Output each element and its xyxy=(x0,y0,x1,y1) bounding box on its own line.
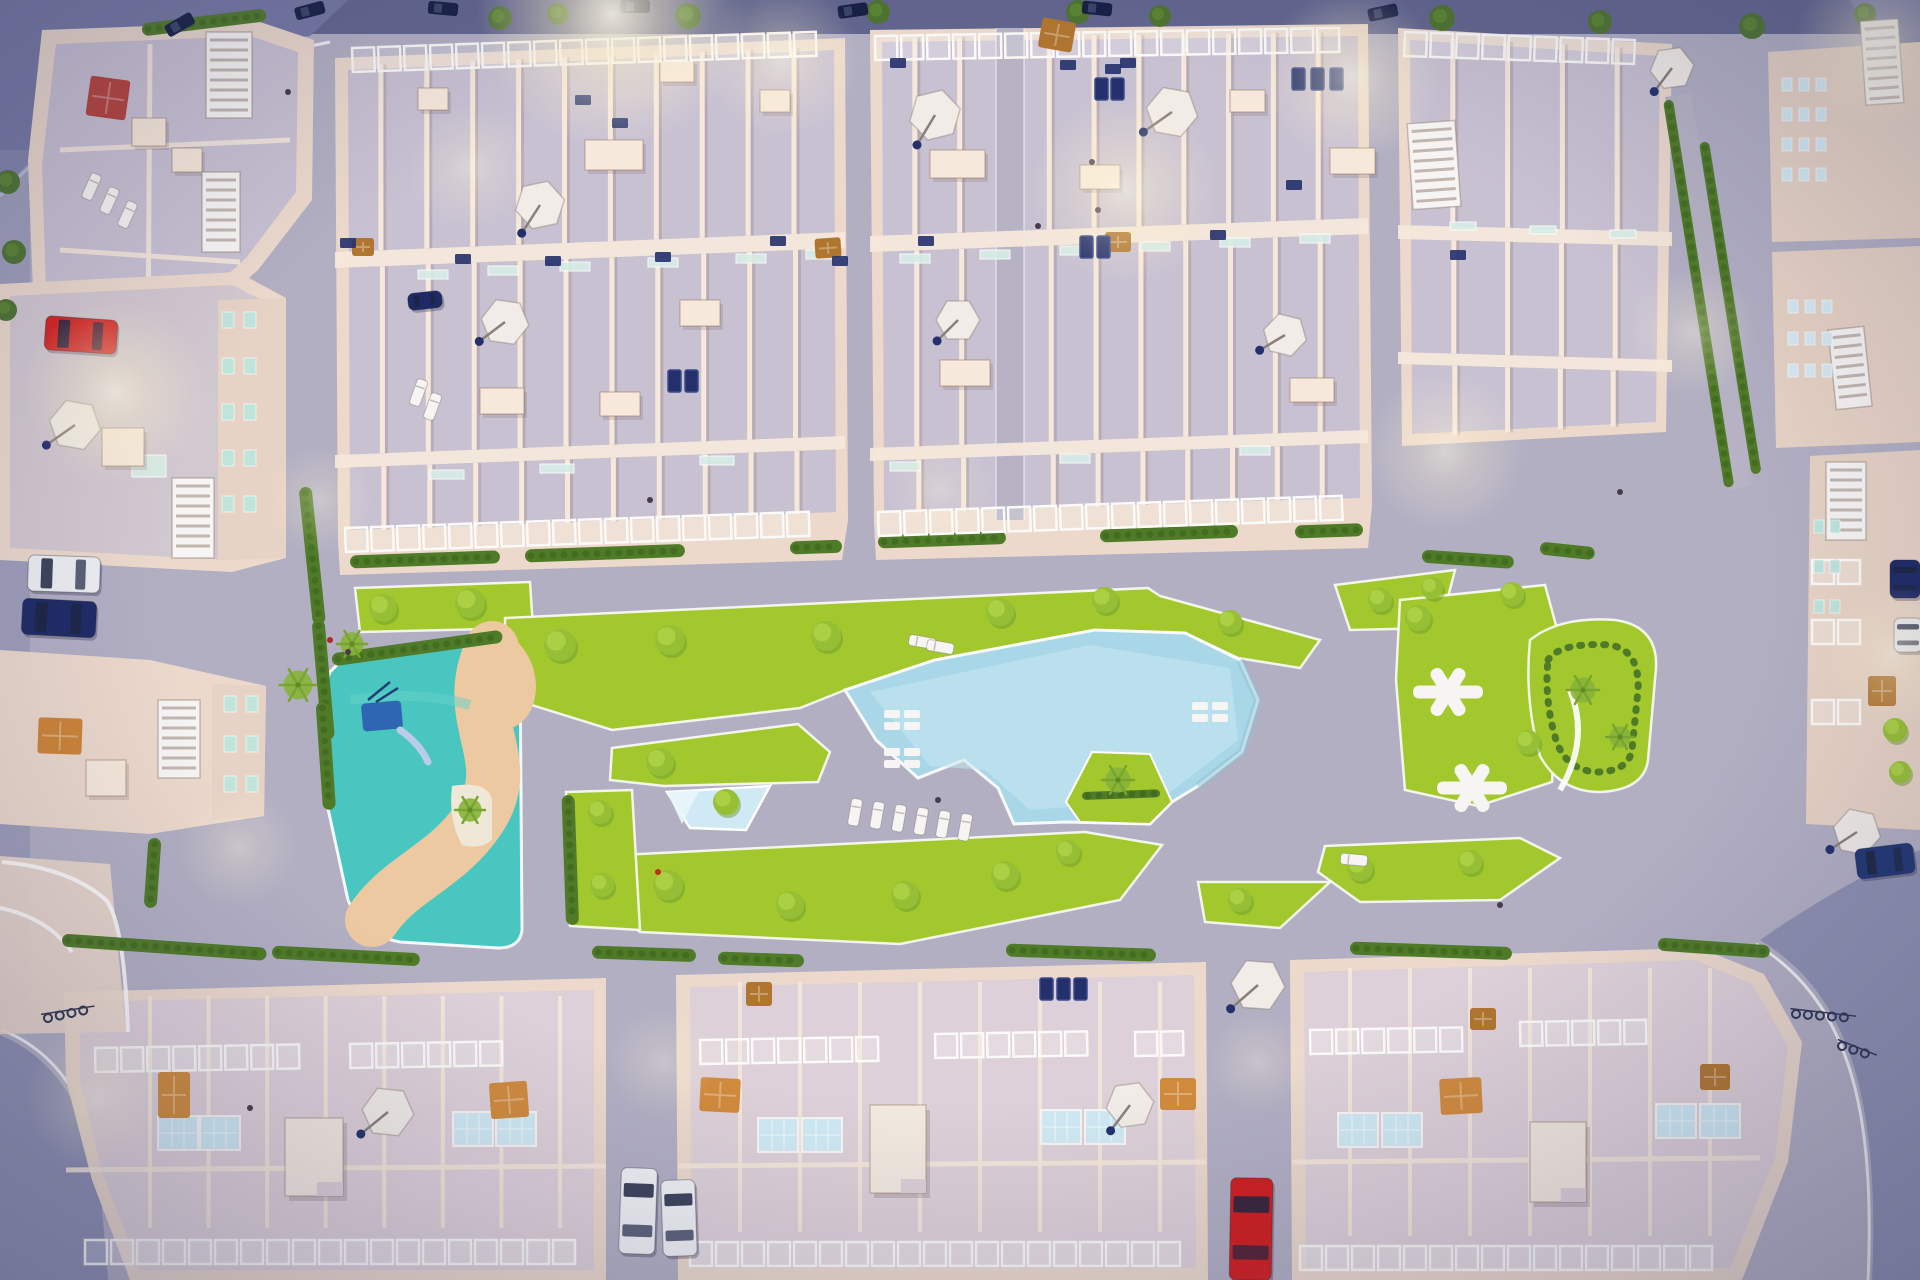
residential-complex-render xyxy=(0,0,1920,1280)
vignette-overlay xyxy=(0,0,1920,1280)
aerial-render-image xyxy=(0,0,1920,1280)
